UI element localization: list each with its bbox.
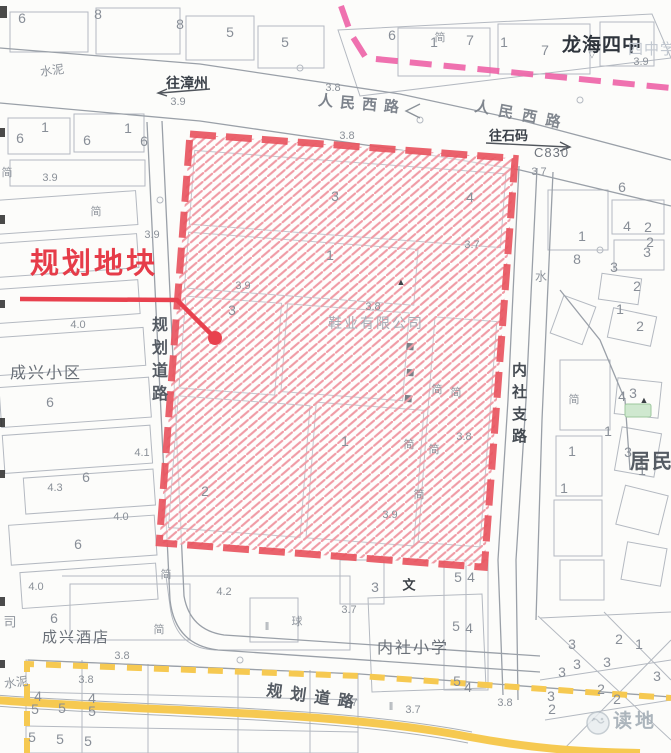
building-number: 5 [28,729,36,745]
building-number: 2 [636,318,644,334]
map-glyph: ‖ [389,701,394,713]
map-glyph: 水泥 [3,672,29,692]
elevation-label: 3.8 [114,650,129,662]
building-number: 1 [560,480,568,496]
building-number: 2 [597,681,605,697]
building-number: 2 [615,631,623,647]
elevation-label: 4.0 [70,319,85,331]
building-number: 7 [541,42,549,58]
building-number: 3 [568,636,576,652]
building-number: 2 [644,219,652,235]
building-number: 2 [548,701,556,717]
place-residents: 居民 [630,452,671,472]
building-number: 3 [653,668,661,684]
elevation-label: 3.7 [405,704,420,716]
building-number: 4 [464,679,472,695]
building-number: 3 [558,664,566,680]
map-glyph: ▲ [397,277,406,287]
plot-callout-label: 规划地块 [30,250,158,279]
road-code-c830: C830 [534,146,569,159]
elevation-label: 4.0 [28,581,43,593]
building-number: 3 [371,579,379,595]
building-number: 1 [500,34,508,50]
elevation-label: 3.8 [365,301,380,313]
elevation-label: 3.9 [42,172,57,184]
place-shoe-company: 鞋业有限公司 [328,316,424,330]
building-number: 5 [452,618,460,634]
building-number: 3 [643,244,651,260]
map-glyph: 简 [404,436,415,452]
elevation-label: 3.9 [144,229,159,241]
building-number: 6 [388,27,396,43]
map-glyph: 简 [154,621,165,637]
building-number: 6 [16,130,24,146]
building-number: 8 [94,6,102,22]
building-number: 7 [466,32,474,48]
building-number: 1 [41,119,49,135]
dudi-watermark: 读地 [613,712,657,731]
map-glyph: 简 [91,203,102,219]
building-number: 6 [74,536,82,552]
building-number: 1 [604,423,612,439]
elevation-label: 3.7 [531,166,546,178]
green-landmark [625,404,651,417]
map-glyph: 简 [435,29,446,45]
map-glyph: 简 [451,384,462,400]
building-number: 2 [633,278,641,294]
building-number: 3 [573,656,581,672]
place-chengxing-estate: 成兴小区 [10,366,82,382]
map-glyph: 简 [569,391,580,407]
building-number: 5 [31,701,39,717]
building-number: 5 [84,733,92,749]
direction-to-shima: 往石码 [489,129,528,142]
building-number: 6 [140,133,148,149]
building-number: 3 [603,654,611,670]
planning-map: 规划地块 人民西路 人民西路 往漳州 往石码 C830 龙海四中 四中学 成兴小… [0,0,671,753]
elevation-label: 3.7 [464,239,479,251]
map-glyph: 简 [161,566,172,582]
building-number: 3 [228,302,236,318]
building-number: 1 [326,247,334,263]
building-number: 5 [281,34,289,50]
building-number: 1 [578,228,586,244]
building-number: 5 [56,731,64,747]
building-number: 4 [465,620,473,636]
elevation-label: 3.9 [170,96,185,108]
building-number: 1 [341,433,349,449]
building-number: 1 [635,636,643,652]
building-number: 4 [618,388,626,404]
building-number: 5 [88,703,96,719]
building-number: 8 [573,251,581,267]
building-number: 3 [629,385,637,401]
elevation-label: 4.0 [113,511,128,523]
building-number: 4 [623,218,631,234]
map-glyph: 简 [432,381,443,397]
building-number: 6 [82,469,90,485]
map-glyph: 文 [402,575,415,594]
map-glyph: 水 [535,268,547,285]
map-glyph: ‖ [265,621,270,633]
building-number: 6 [83,132,91,148]
road-label-neishe-branch: 内社支路 [511,362,526,450]
map-glyph: 司 [3,612,16,631]
callout-dot [208,331,222,345]
building-number: 4 [467,569,475,585]
building-number: 5 [454,569,462,585]
elevation-label: 3.9 [382,509,397,521]
building-number: 5 [453,673,461,689]
elevation-label: 3.9 [235,280,250,292]
building-number: 6 [618,179,626,195]
direction-to-zhangzhou: 往漳州 [166,76,208,90]
building-number: 6 [50,610,58,626]
map-glyph: 球 [292,613,303,629]
place-chengxing-hotel: 成兴酒店 [42,630,110,645]
building-number: 1 [568,443,576,459]
road-label-planned-road-left: 规划道路 [149,316,165,408]
building-number: 8 [176,16,184,32]
elevation-label: 4.1 [134,447,149,459]
place-longhai-no4-faint: 四中学 [628,42,671,57]
elevation-label: 3.8 [78,674,93,686]
building-number: 5 [58,700,66,716]
elevation-label: 3.8 [456,431,471,443]
elevation-label: 4.3 [47,482,62,494]
building-number: 3 [331,188,339,204]
elevation-label: 3.7 [341,604,356,616]
place-neishe-primary-school: 内社小学 [377,641,449,657]
building-number: 6 [46,394,54,410]
map-glyph: 简 [2,164,13,180]
building-number: 1 [616,301,624,317]
building-number: 6 [18,10,26,26]
elevation-label: 4.2 [216,586,231,598]
building-number: 2 [201,483,209,499]
building-number: 5 [226,24,234,40]
building-number: 4 [466,189,474,205]
watermark-logo-icon [587,712,609,734]
building-number: 2 [613,691,621,707]
map-glyph: 简 [414,486,425,502]
building-number: 3 [610,259,618,275]
elevation-label: 3.8 [339,130,354,142]
map-glyph: ▲ [640,395,649,405]
map-glyph: 简 [429,441,440,457]
elevation-label: 3.8 [497,697,512,709]
building-number: 1 [124,120,132,136]
map-glyph: 水泥 [39,60,65,80]
